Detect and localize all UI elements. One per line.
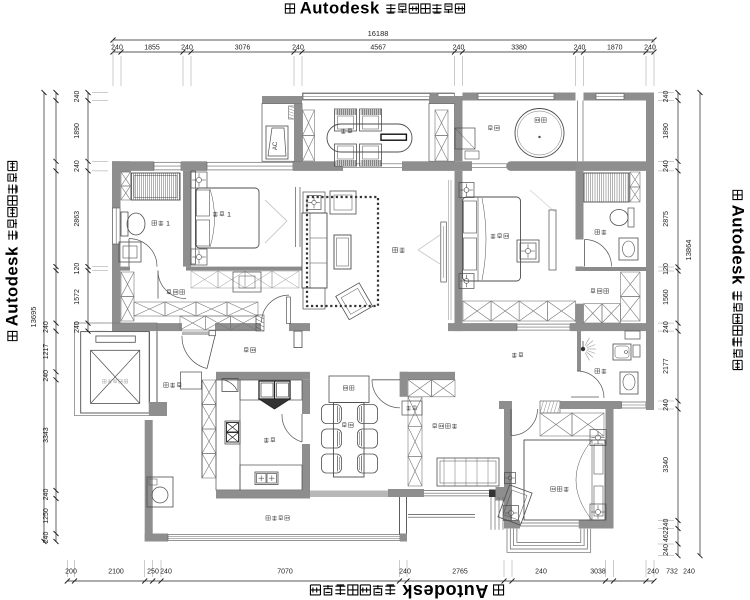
svg-text:240: 240 [535,569,547,576]
svg-text:1855: 1855 [144,45,160,52]
svg-text:Autodesk: Autodesk [300,0,380,17]
svg-text:240: 240 [663,519,670,531]
svg-text:13695: 13695 [29,307,38,328]
svg-text:1572: 1572 [74,289,81,305]
svg-text:3340: 3340 [663,457,670,473]
svg-text:200: 200 [65,569,77,576]
svg-text:2100: 2100 [108,569,124,576]
svg-text:240: 240 [663,544,670,556]
svg-text:240: 240 [74,321,81,333]
svg-text:120: 120 [74,263,81,275]
svg-text:7070: 7070 [277,569,293,576]
svg-text:240: 240 [74,91,81,103]
svg-text:Autodesk: Autodesk [729,205,748,285]
svg-text:120: 120 [663,263,670,275]
svg-text:3076: 3076 [235,45,251,52]
svg-text:2765: 2765 [452,569,468,576]
svg-text:AC: AC [273,141,279,150]
svg-text:1: 1 [166,220,170,227]
svg-text:250: 250 [147,569,159,576]
svg-text:3038: 3038 [590,569,606,576]
svg-text:240: 240 [663,399,670,411]
svg-text:3380: 3380 [511,45,527,52]
svg-text:240: 240 [574,45,586,52]
svg-text:240: 240 [663,321,670,333]
svg-text:240: 240 [292,45,304,52]
svg-text:240: 240 [160,569,172,576]
svg-text:1890: 1890 [74,123,81,139]
svg-text:240: 240 [74,160,81,172]
svg-text:240: 240 [399,569,411,576]
svg-text:732: 732 [666,569,678,576]
svg-text:13864: 13864 [684,240,693,261]
svg-text:240: 240 [663,91,670,103]
svg-text:240: 240 [181,45,193,52]
svg-text:1560: 1560 [663,289,670,305]
svg-text:16188: 16188 [368,29,389,38]
svg-text:Autodesk: Autodesk [2,246,21,326]
svg-text:Autodesk: Autodesk [401,581,488,600]
svg-text:2863: 2863 [74,211,81,227]
svg-text:1870: 1870 [607,45,623,52]
svg-text:4567: 4567 [370,45,386,52]
svg-text:1: 1 [227,211,231,218]
svg-text:462: 462 [663,530,670,542]
svg-text:240: 240 [453,45,465,52]
svg-text:2177: 2177 [663,358,670,374]
svg-text:1890: 1890 [663,123,670,139]
svg-text:240: 240 [647,569,659,576]
svg-text:240: 240 [683,569,695,576]
svg-text:2875: 2875 [663,211,670,227]
svg-text:240: 240 [663,160,670,172]
